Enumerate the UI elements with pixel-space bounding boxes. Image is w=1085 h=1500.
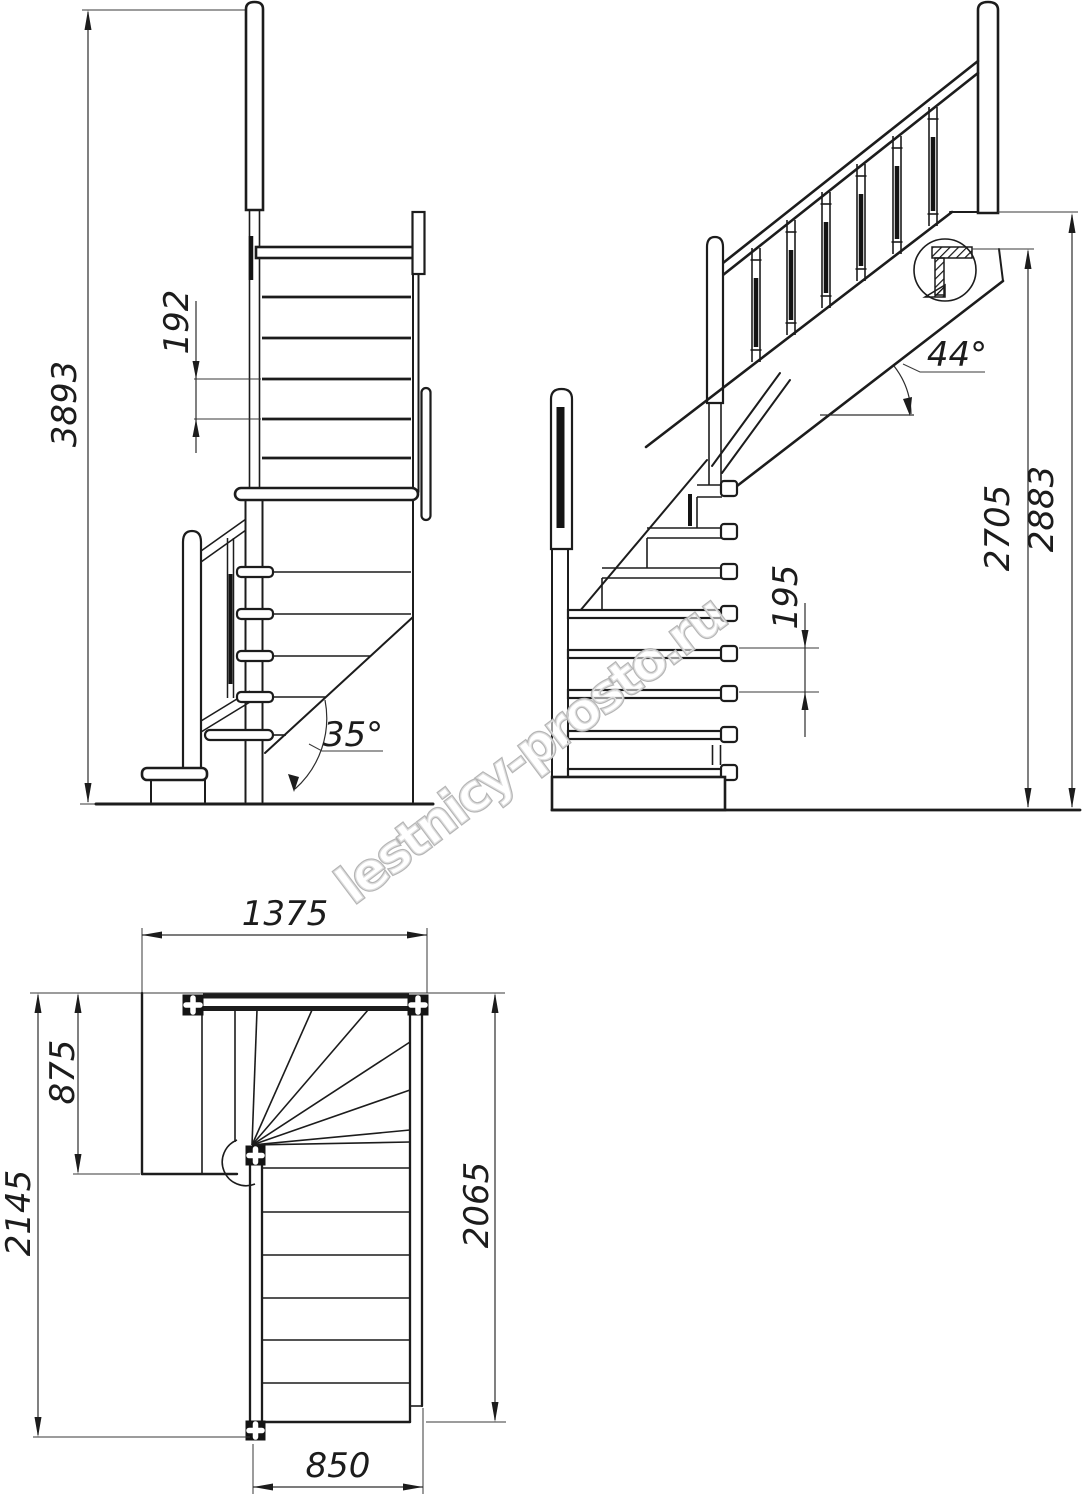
plan-view — [30, 928, 506, 1494]
side-winder-stringer — [574, 460, 707, 618]
dim-label-total-height: 3893 — [45, 361, 85, 448]
front-treads — [262, 297, 411, 458]
side-stringer-top — [646, 212, 952, 447]
front-elevation-view — [80, 2, 433, 804]
side-winder-steps — [602, 481, 737, 610]
side-handrail — [723, 61, 978, 275]
plan-landing — [142, 993, 237, 1174]
plan-winder-fan — [252, 1010, 410, 1145]
stair-blueprint-page: 3893 192 35° 44° 195 2705 2883 1375 875 … — [0, 0, 1085, 1500]
front-bottom-step — [142, 768, 207, 780]
angle-label-35: 35° — [323, 715, 383, 755]
front-small-newel-post — [183, 531, 201, 770]
side-connection-detail — [914, 239, 976, 301]
dim-3893 — [80, 10, 248, 804]
plan-flight-treads — [262, 1168, 410, 1422]
front-side-rail-post — [422, 388, 431, 520]
front-handrail-bar — [235, 488, 418, 500]
dim-label-2145: 2145 — [0, 1170, 39, 1257]
plan-newel-top-left — [183, 995, 203, 1015]
dim-192 — [193, 301, 262, 453]
side-balusters — [751, 107, 939, 362]
watermark-text: lestnicy-prosto.ru — [325, 583, 740, 917]
dim-label-875: 875 — [43, 1040, 83, 1105]
side-plinth — [552, 777, 725, 810]
side-mid-newel-post — [707, 237, 723, 403]
dim-label-riser-195: 195 — [766, 565, 806, 630]
side-stringer-bottom — [737, 281, 1003, 486]
front-landing-edge — [256, 247, 414, 258]
dim-1375 — [142, 928, 427, 993]
front-baluster — [228, 538, 234, 698]
side-top-newel-post — [978, 2, 998, 213]
plan-newel-pivot — [246, 1146, 265, 1165]
dim-875 — [73, 993, 140, 1174]
side-newel-dark-inlay — [557, 407, 565, 528]
dim-label-riser-192: 192 — [157, 290, 197, 355]
front-top-newel-post — [246, 2, 263, 210]
dim-label-2065: 2065 — [457, 1162, 497, 1249]
dim-label-2705: 2705 — [978, 485, 1018, 572]
stair-drawing: 3893 192 35° 44° 195 2705 2883 1375 875 … — [0, 0, 1085, 1500]
angle-label-44: 44° — [927, 335, 987, 375]
front-newel-step — [205, 730, 273, 740]
plan-newel-top-right — [408, 995, 428, 1015]
dim-label-1375: 1375 — [242, 894, 329, 934]
dim-label-850: 850 — [306, 1446, 371, 1486]
dim-label-2883: 2883 — [1022, 466, 1062, 553]
front-right-post — [413, 212, 425, 274]
